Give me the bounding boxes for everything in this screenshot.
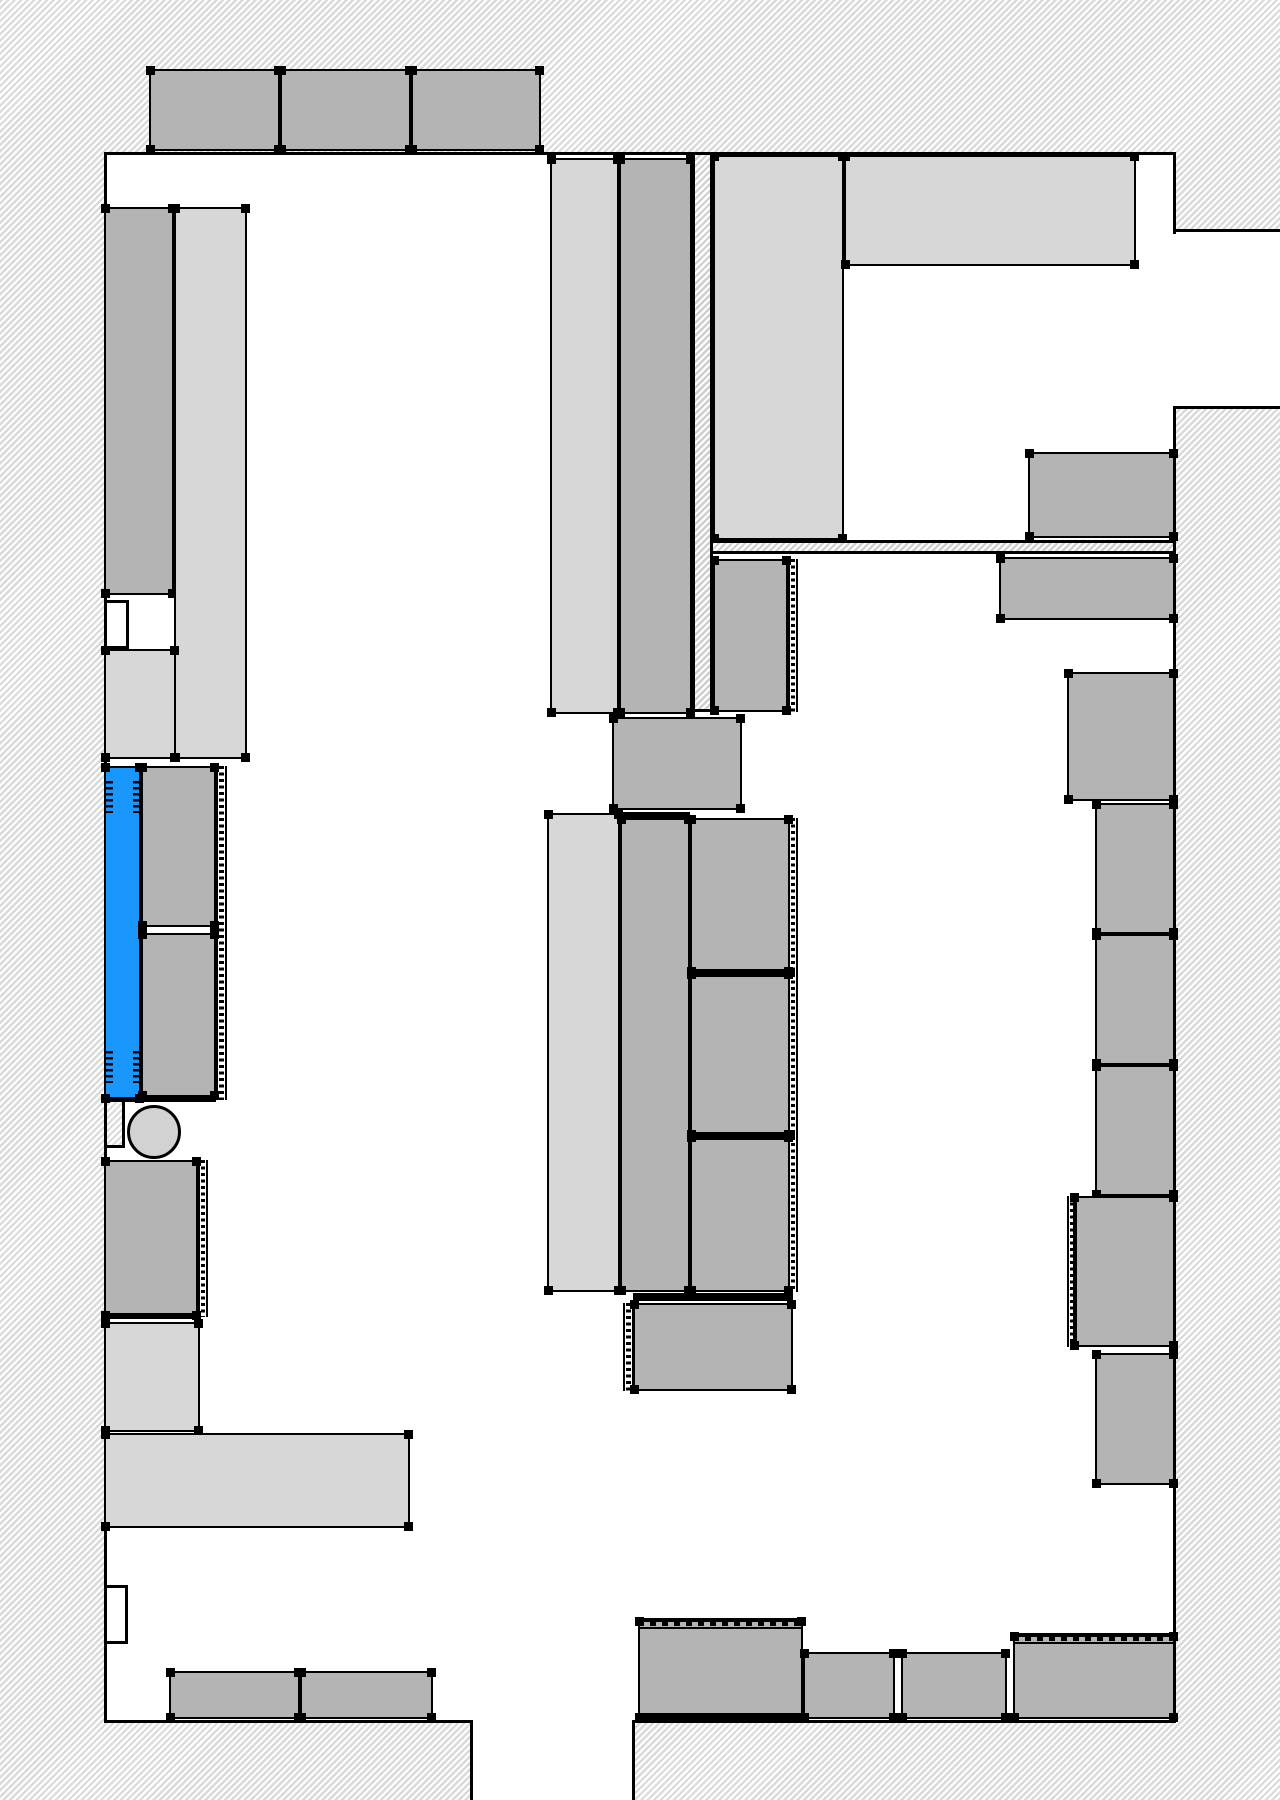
center-column-shelf-1[interactable] — [690, 818, 790, 973]
resize-handle[interactable] — [544, 1286, 553, 1295]
resize-handle[interactable] — [841, 152, 850, 161]
resize-handle[interactable] — [138, 921, 147, 930]
resize-handle[interactable] — [1169, 1341, 1178, 1350]
wall-pillar-bump — [104, 1100, 125, 1148]
resize-handle[interactable] — [1169, 554, 1178, 563]
resize-handle[interactable] — [787, 1385, 796, 1394]
resize-handle[interactable] — [241, 204, 250, 213]
resize-handle[interactable] — [889, 1649, 898, 1658]
door-recess-upper — [104, 600, 129, 649]
selection-comb-bottom-left — [106, 1051, 113, 1083]
resize-handle[interactable] — [889, 1713, 898, 1722]
bottom-left-shelf-1[interactable] — [169, 1671, 300, 1719]
resize-handle[interactable] — [616, 155, 625, 164]
resize-handle[interactable] — [1169, 614, 1178, 623]
resize-handle[interactable] — [1064, 795, 1073, 804]
thick-divider-column-2 — [690, 1132, 795, 1140]
left-counter-bar[interactable] — [104, 1433, 410, 1528]
resize-handle[interactable] — [170, 646, 179, 655]
resize-handle[interactable] — [1169, 1479, 1178, 1488]
resize-handle[interactable] — [146, 66, 155, 75]
left-shelf-light-extension[interactable] — [104, 649, 176, 759]
resize-handle[interactable] — [544, 810, 553, 819]
bottom-shelf-d[interactable] — [1013, 1635, 1175, 1719]
resize-handle[interactable] — [547, 155, 556, 164]
resize-handle[interactable] — [686, 708, 695, 717]
thick-edge-left-lower — [104, 1313, 198, 1319]
resize-handle[interactable] — [1169, 449, 1178, 458]
shelf-edge-ticks-left-mid — [216, 766, 227, 1100]
left-lower-shelf-light[interactable] — [104, 1322, 200, 1432]
resize-handle[interactable] — [841, 260, 850, 269]
top-shelf-3[interactable] — [411, 69, 541, 151]
resize-handle[interactable] — [138, 930, 147, 939]
resize-handle[interactable] — [101, 204, 110, 213]
center-aisle-light-lower[interactable] — [547, 813, 620, 1292]
wall-mounted-shelf[interactable] — [999, 557, 1175, 620]
resize-handle[interactable] — [101, 1522, 110, 1531]
center-end-cap-shelf[interactable] — [633, 1303, 793, 1391]
exit-jamb-right — [632, 1720, 635, 1800]
interior-wall-vertical — [692, 152, 713, 712]
resize-handle[interactable] — [404, 1522, 413, 1531]
corridor-bottom-wall — [1173, 406, 1280, 409]
resize-handle[interactable] — [408, 145, 417, 154]
resize-handle[interactable] — [166, 1713, 175, 1722]
bottom-shelf-c[interactable] — [901, 1652, 1007, 1719]
thick-divider-end-cap — [633, 1293, 793, 1301]
center-aisle-dark-upper[interactable] — [619, 158, 692, 714]
resize-handle[interactable] — [1025, 532, 1034, 541]
left-tall-shelf-dark[interactable] — [104, 207, 174, 595]
left-lower-shelf-dark[interactable] — [104, 1160, 198, 1317]
resize-handle[interactable] — [617, 1286, 626, 1295]
resize-handle[interactable] — [710, 706, 719, 715]
below-wall-small-shelf[interactable] — [713, 559, 788, 712]
left-mid-shelf-2[interactable] — [141, 933, 216, 1097]
resize-handle[interactable] — [686, 155, 695, 164]
right-column-shelf-3[interactable] — [1095, 934, 1175, 1065]
resize-handle[interactable] — [710, 152, 719, 161]
left-tall-shelf-light[interactable] — [174, 207, 247, 759]
resize-handle[interactable] — [427, 1713, 436, 1722]
resize-handle[interactable] — [297, 1713, 306, 1722]
thick-edge-aisle-lower-top — [620, 812, 690, 819]
resize-handle[interactable] — [101, 589, 110, 598]
right-column-shelf-4[interactable] — [1095, 1065, 1175, 1196]
right-column-shelf-5[interactable] — [1073, 1196, 1175, 1347]
resize-handle[interactable] — [1025, 449, 1034, 458]
thick-divider-column-1 — [690, 969, 795, 977]
bottom-exit-opening — [473, 1720, 632, 1800]
resize-handle[interactable] — [838, 534, 847, 543]
resize-handle[interactable] — [1169, 1193, 1178, 1202]
resize-handle[interactable] — [1001, 1649, 1010, 1658]
resize-handle[interactable] — [996, 614, 1005, 623]
resize-handle[interactable] — [1169, 1350, 1178, 1359]
resize-handle[interactable] — [1092, 1350, 1101, 1359]
resize-handle[interactable] — [1092, 1479, 1101, 1488]
resize-handle[interactable] — [1130, 260, 1139, 269]
resize-handle[interactable] — [101, 1430, 110, 1439]
door-recess-lower — [104, 1585, 128, 1644]
resize-handle[interactable] — [101, 1157, 110, 1166]
resize-handle[interactable] — [898, 1713, 907, 1722]
left-mid-shelf-1[interactable] — [141, 766, 216, 927]
resize-handle[interactable] — [787, 1300, 796, 1309]
resize-handle[interactable] — [146, 145, 155, 154]
resize-handle[interactable] — [1092, 931, 1101, 940]
center-aisle-dark-lower[interactable] — [620, 818, 690, 1292]
resize-handle[interactable] — [101, 646, 110, 655]
upper-room-light-block[interactable] — [844, 155, 1136, 266]
center-island-box[interactable] — [612, 717, 742, 810]
resize-handle[interactable] — [404, 1430, 413, 1439]
shelf-edge-ticks-below-wall — [788, 559, 798, 712]
resize-handle[interactable] — [736, 804, 745, 813]
resize-handle[interactable] — [609, 714, 618, 723]
resize-handle[interactable] — [408, 66, 417, 75]
resize-handle[interactable] — [138, 763, 147, 772]
resize-handle[interactable] — [535, 145, 544, 154]
resize-handle[interactable] — [996, 554, 1005, 563]
right-upper-shelf[interactable] — [1028, 452, 1175, 538]
selection-comb-bottom-right — [133, 1051, 140, 1083]
right-wall-upper — [1173, 152, 1176, 234]
resize-handle[interactable] — [194, 1319, 203, 1328]
center-column-shelf-3[interactable] — [690, 1136, 790, 1292]
resize-handle[interactable] — [427, 1668, 436, 1677]
bottom-shelf-a[interactable] — [638, 1620, 803, 1719]
resize-handle[interactable] — [1169, 532, 1178, 541]
resize-handle[interactable] — [166, 1668, 175, 1677]
upper-room-light-strip[interactable] — [713, 155, 844, 540]
resize-handle[interactable] — [170, 753, 179, 762]
right-column-shelf-6[interactable] — [1095, 1353, 1175, 1485]
right-corridor-opening — [1175, 231, 1280, 407]
right-column-shelf-1[interactable] — [1067, 672, 1175, 801]
selection-comb-top-left — [106, 781, 113, 813]
resize-handle[interactable] — [241, 753, 250, 762]
resize-handle[interactable] — [101, 1319, 110, 1328]
resize-handle[interactable] — [297, 1668, 306, 1677]
shelf-edge-ticks-center-column — [788, 818, 798, 1292]
top-shelf-2[interactable] — [280, 69, 411, 151]
resize-handle[interactable] — [1001, 1713, 1010, 1722]
resize-handle[interactable] — [101, 763, 110, 772]
selected-fixture-blue[interactable] — [104, 766, 141, 1100]
shelf-edge-ticks-end-cap — [623, 1303, 634, 1391]
resize-handle[interactable] — [1064, 669, 1073, 678]
resize-handle[interactable] — [277, 145, 286, 154]
resize-handle[interactable] — [710, 534, 719, 543]
center-column-shelf-2[interactable] — [690, 973, 790, 1136]
round-table[interactable] — [127, 1105, 181, 1159]
resize-handle[interactable] — [1169, 931, 1178, 940]
resize-handle[interactable] — [101, 753, 110, 762]
resize-handle[interactable] — [710, 556, 719, 565]
bottom-shelf-b[interactable] — [803, 1652, 895, 1719]
resize-handle[interactable] — [736, 714, 745, 723]
resize-handle[interactable] — [1169, 1062, 1178, 1071]
shelf-edge-ticks-bottom-a — [638, 1618, 803, 1629]
corridor-top-wall — [1173, 229, 1280, 232]
resize-handle[interactable] — [1169, 669, 1178, 678]
bottom-left-shelf-2[interactable] — [300, 1671, 433, 1719]
resize-handle[interactable] — [1092, 1062, 1101, 1071]
resize-handle[interactable] — [1169, 1713, 1178, 1722]
resize-handle[interactable] — [800, 1649, 809, 1658]
resize-handle[interactable] — [898, 1649, 907, 1658]
resize-handle[interactable] — [1010, 1713, 1019, 1722]
resize-handle[interactable] — [1169, 800, 1178, 809]
resize-handle[interactable] — [277, 66, 286, 75]
shelf-edge-ticks-bottom-d — [1013, 1633, 1175, 1644]
resize-handle[interactable] — [1092, 800, 1101, 809]
shelf-edge-ticks-left-lower — [198, 1160, 208, 1317]
thick-edge-left-mid-bottom — [104, 1097, 216, 1102]
selection-comb-top-right — [133, 781, 140, 813]
center-aisle-light-upper[interactable] — [550, 158, 619, 714]
exit-jamb-left — [470, 1720, 473, 1800]
top-shelf-1[interactable] — [149, 69, 280, 151]
resize-handle[interactable] — [535, 66, 544, 75]
thick-edge-bottom-a — [638, 1713, 803, 1720]
right-column-shelf-2[interactable] — [1095, 803, 1175, 934]
bottom-wall-left — [104, 1720, 473, 1723]
resize-handle[interactable] — [547, 708, 556, 717]
shelf-edge-ticks-right-column — [1067, 1196, 1077, 1347]
interior-wall-horizontal — [711, 540, 1175, 554]
resize-handle[interactable] — [1130, 152, 1139, 161]
resize-handle[interactable] — [171, 204, 180, 213]
floor-plan-canvas — [0, 0, 1280, 1800]
